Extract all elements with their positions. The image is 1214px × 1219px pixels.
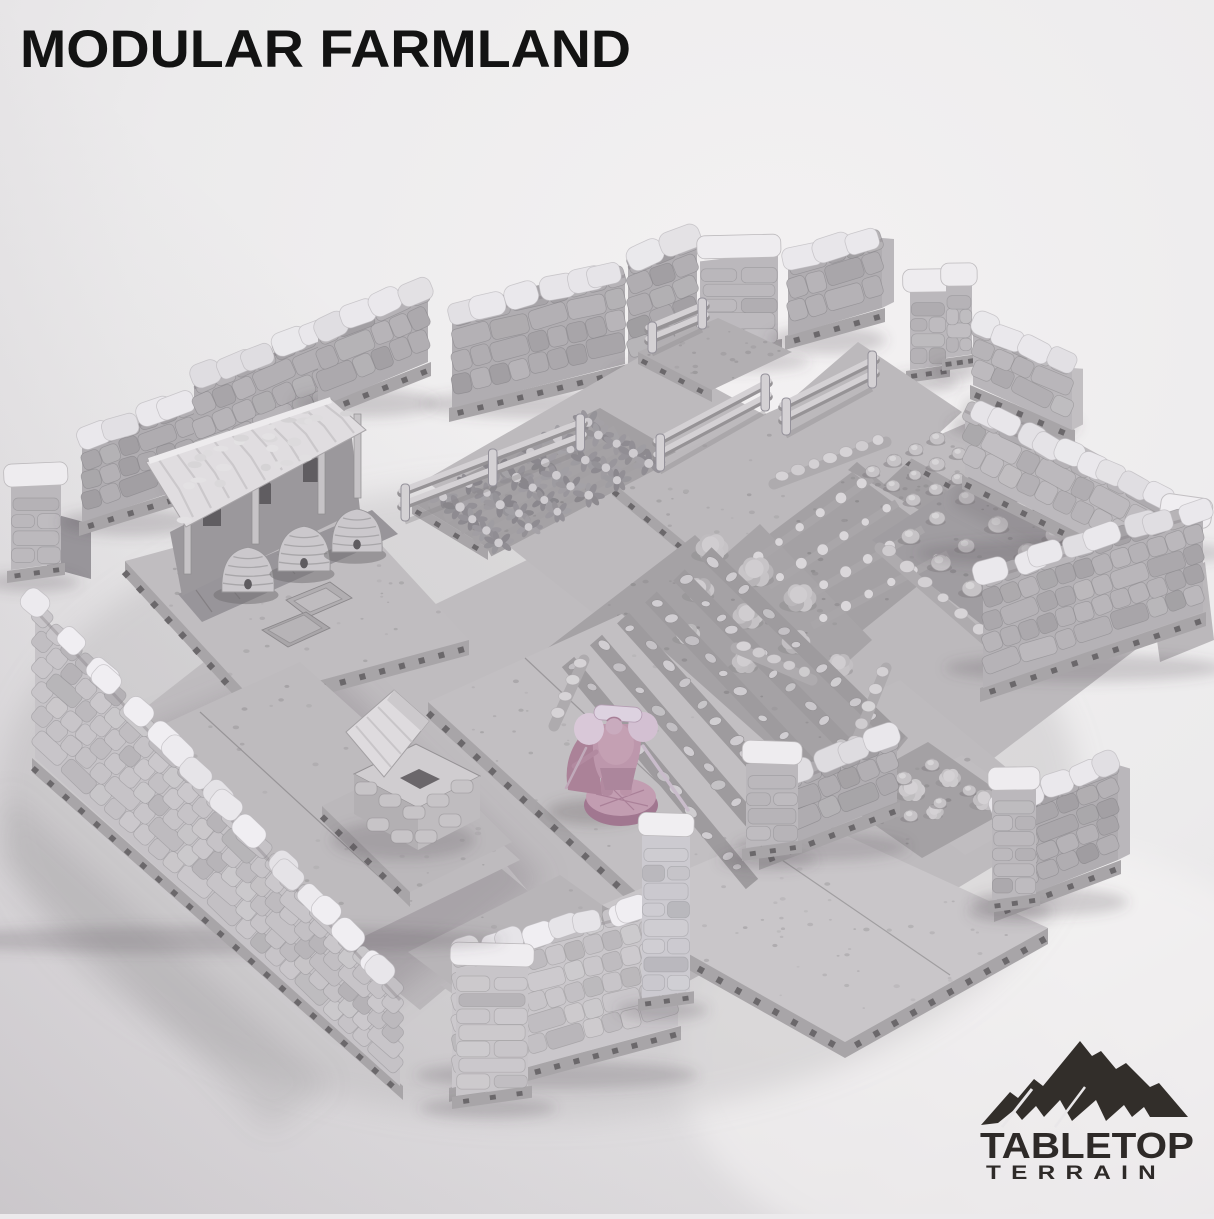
- svg-text:TERRAIN: TERRAIN: [986, 1163, 1166, 1184]
- svg-text:MODULAR FARMLAND: MODULAR FARMLAND: [20, 20, 631, 79]
- svg-text:TABLETOP: TABLETOP: [980, 1125, 1194, 1166]
